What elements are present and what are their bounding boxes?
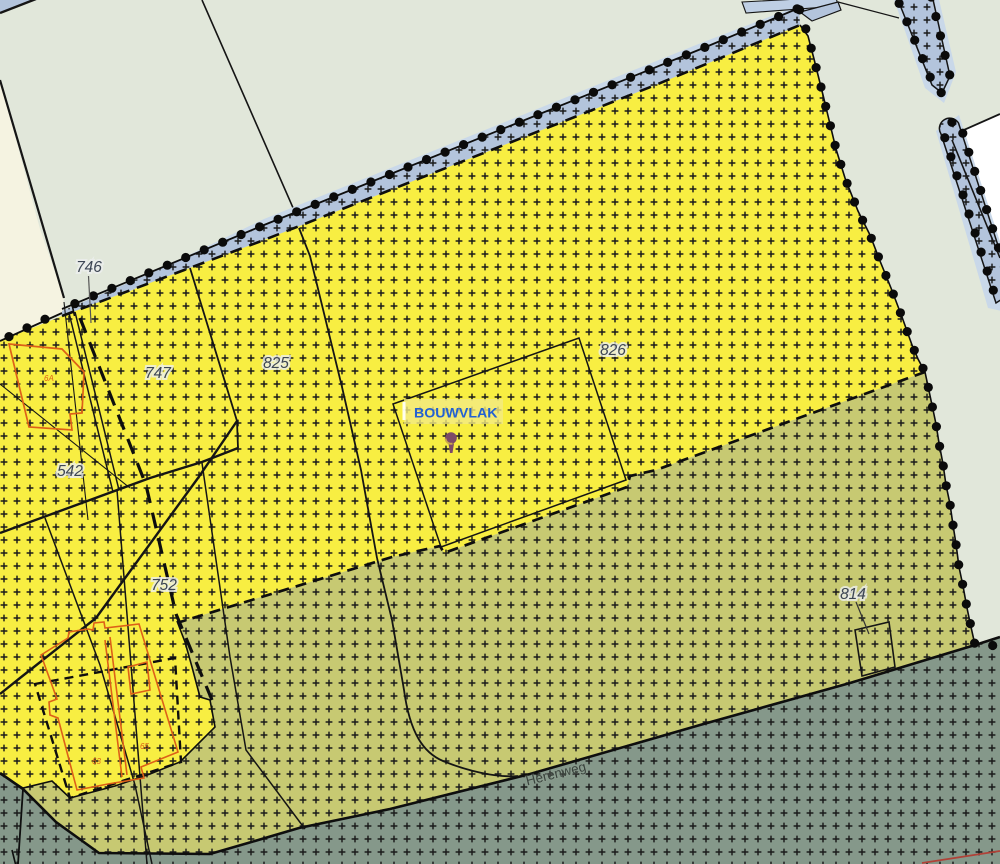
svg-text:BOUWVLAK: BOUWVLAK — [414, 406, 498, 422]
svg-text:747: 747 — [145, 365, 172, 382]
svg-text:746: 746 — [76, 259, 102, 276]
svg-text:542: 542 — [57, 463, 83, 480]
svg-text:65: 65 — [140, 742, 149, 751]
svg-text:752: 752 — [151, 577, 177, 594]
svg-text:825: 825 — [263, 355, 289, 372]
svg-text:826: 826 — [600, 342, 626, 359]
svg-text:63: 63 — [92, 757, 101, 766]
svg-text:814: 814 — [840, 586, 866, 603]
svg-text:6A: 6A — [44, 374, 54, 383]
